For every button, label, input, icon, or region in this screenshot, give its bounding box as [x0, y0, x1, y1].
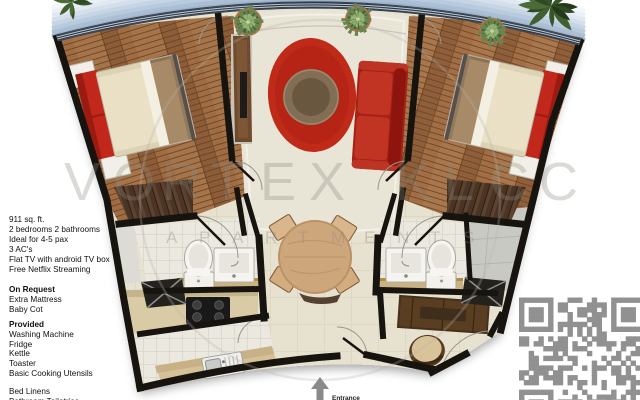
- svg-text:L: L: [444, 152, 474, 212]
- svg-text:T: T: [430, 228, 440, 247]
- svg-text:911 sq. ft.: 911 sq. ft.: [9, 215, 44, 224]
- svg-text:Ideal for 4-5 pax: Ideal for 4-5 pax: [9, 235, 68, 244]
- svg-text:X: X: [309, 152, 345, 212]
- svg-text:O: O: [113, 152, 155, 212]
- svg-text:N: N: [397, 228, 409, 247]
- svg-text:Bed Linens: Bed Linens: [9, 387, 50, 396]
- svg-text:Entrance: Entrance: [332, 395, 360, 400]
- svg-text:Provided: Provided: [9, 320, 44, 329]
- svg-text:A: A: [232, 228, 244, 247]
- svg-text:A: A: [166, 228, 178, 247]
- svg-text:Baby Cot: Baby Cot: [9, 305, 43, 314]
- svg-text:Washing Machine: Washing Machine: [9, 330, 74, 339]
- svg-text:Toaster: Toaster: [9, 359, 36, 368]
- svg-text:T: T: [211, 152, 244, 212]
- svg-text:C: C: [539, 152, 578, 212]
- svg-text:E: E: [364, 228, 375, 247]
- svg-text:Kettle: Kettle: [9, 349, 30, 358]
- svg-text:P: P: [199, 228, 210, 247]
- svg-text:V: V: [64, 152, 100, 212]
- svg-text:3 AC's: 3 AC's: [9, 245, 32, 254]
- svg-text:C: C: [490, 152, 529, 212]
- svg-text:M: M: [331, 228, 345, 247]
- svg-text:Free Netflix Streaming: Free Netflix Streaming: [9, 265, 91, 274]
- svg-text:S: S: [463, 228, 474, 247]
- svg-text:Fridge: Fridge: [9, 340, 33, 349]
- svg-text:Flat TV with android TV box: Flat TV with android TV box: [9, 255, 110, 264]
- svg-text:K: K: [395, 152, 431, 212]
- svg-text:Extra Mattress: Extra Mattress: [9, 295, 62, 304]
- svg-text:T: T: [298, 228, 308, 247]
- svg-text:R: R: [265, 228, 277, 247]
- svg-text:2 bedrooms 2 bathrooms: 2 bedrooms 2 bathrooms: [9, 225, 100, 234]
- svg-text:On Request: On Request: [9, 285, 55, 294]
- svg-text:E: E: [260, 152, 296, 212]
- svg-text:Basic Cooking Utensils: Basic Cooking Utensils: [9, 369, 93, 378]
- svg-text:R: R: [162, 152, 201, 212]
